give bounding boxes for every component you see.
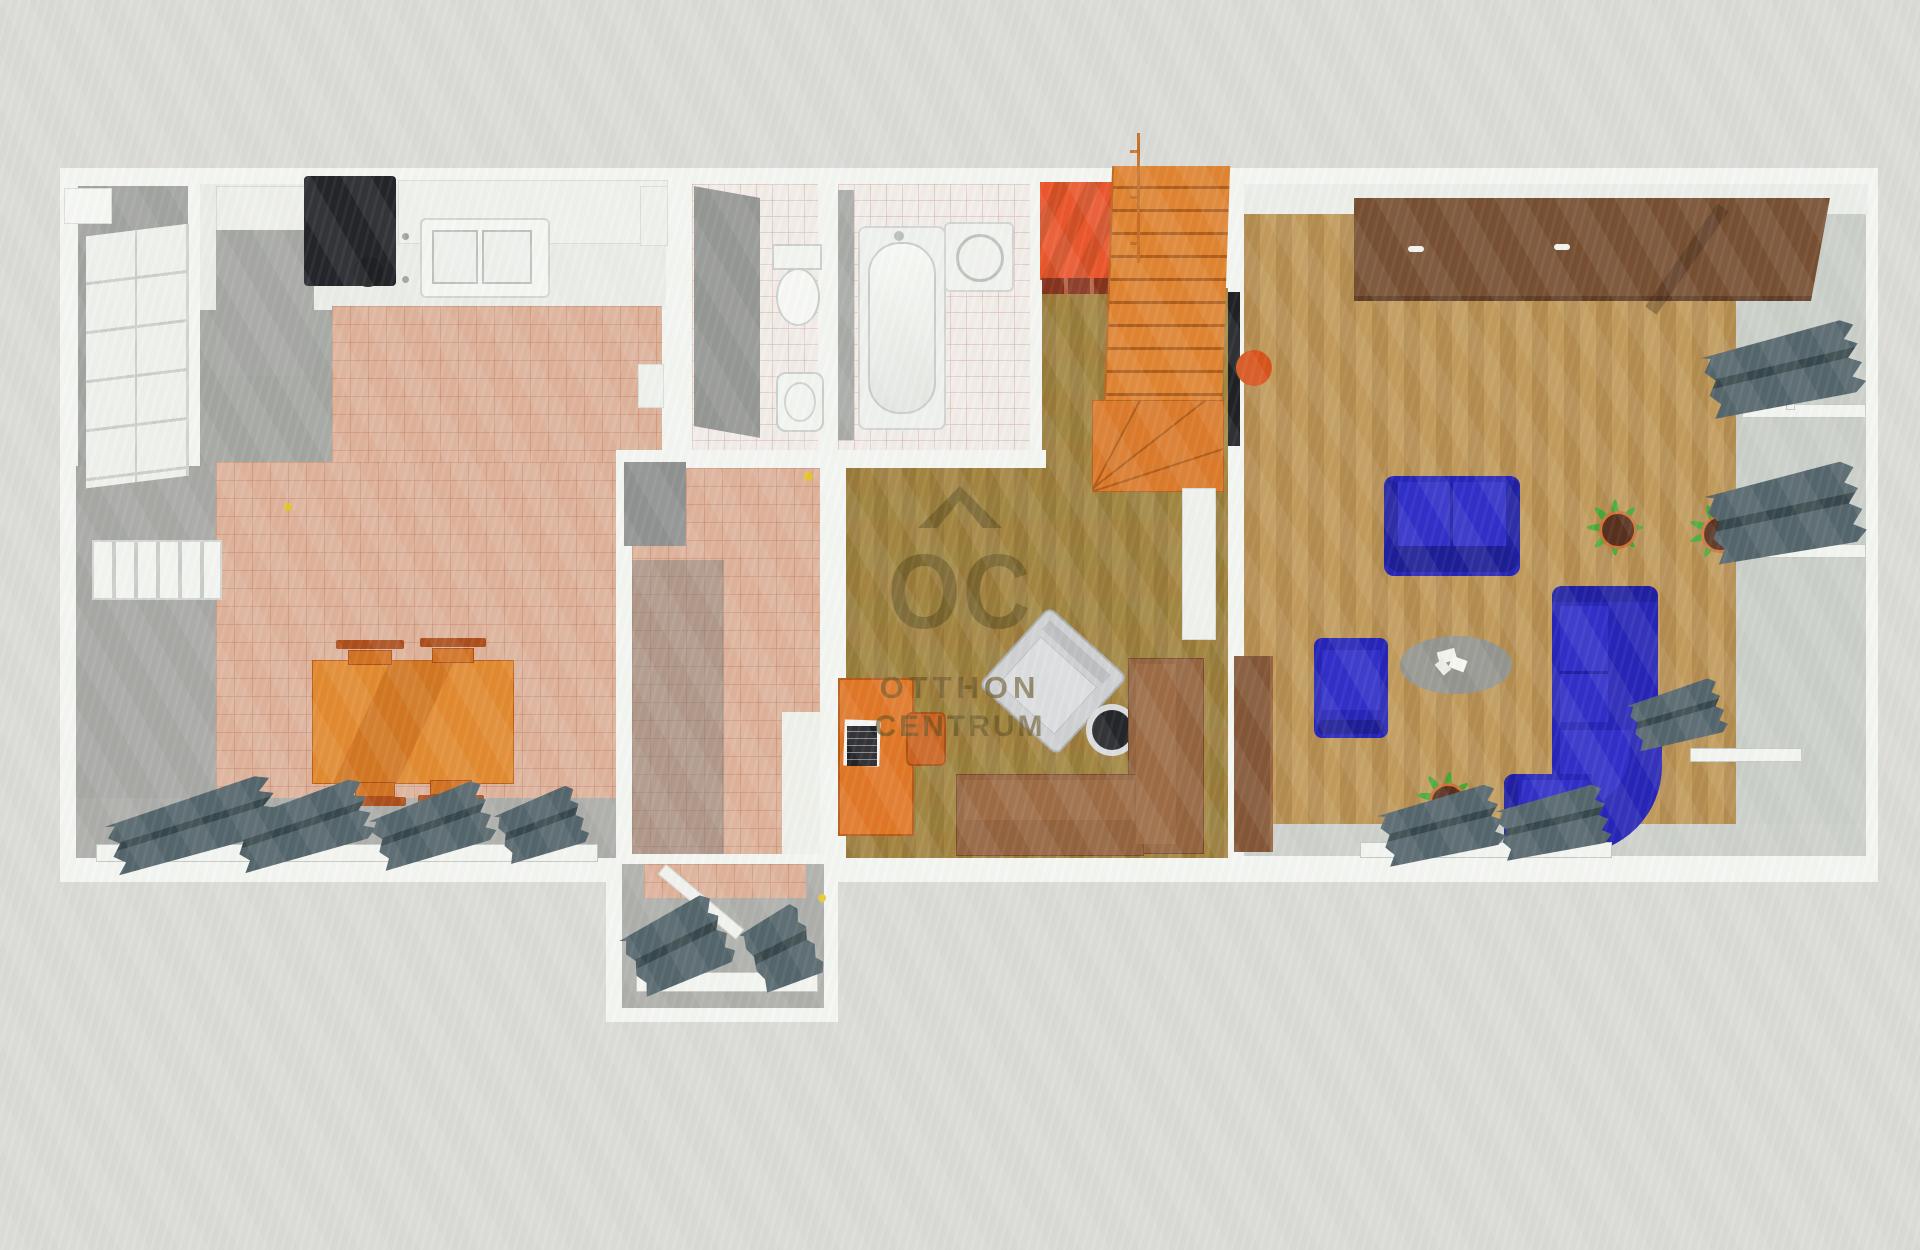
closet-shelf-unit [86,224,189,489]
counter-box-lower [638,364,664,408]
watermark-line2: CENTRUM [870,710,1050,744]
faucet-icon [402,276,409,283]
brown-sofa-seat [1136,664,1176,844]
door-handle-dot [804,472,813,481]
bathtub-faucet [894,231,904,241]
dining-table [312,660,514,784]
counter-box-right [640,186,668,246]
toilet-tank [772,244,822,270]
hallway-wall-fragment [624,462,686,546]
stair-winders [1092,400,1224,492]
blue-armchair [1314,638,1388,738]
kitchen-door-handle-dot [284,503,292,511]
brown-sofa-seat [964,780,1134,820]
hallway-light-patch [782,712,820,854]
side-table-black [1092,710,1132,750]
wardrobe-brown [1354,198,1830,301]
kitchen-tile-floor [332,306,662,468]
dining-window-shutter [92,540,222,600]
blue-loveseat [1384,476,1520,576]
wc-left-wall-face [694,186,760,438]
watermark-abbrev: OC [883,537,1037,647]
wardrobe-handle [1554,244,1570,250]
orange-stool [1236,350,1272,386]
bidet-basin [784,382,816,422]
washer-door [956,234,1004,282]
right-window-frame [1690,748,1802,762]
dining-chair [420,638,486,664]
range-knob [353,257,383,287]
hallway-shadow [632,560,724,854]
study-door-leaf [1182,488,1216,640]
porch-door-handle-dot [818,894,826,902]
wardrobe-handle [1408,246,1424,252]
stair-run [1104,166,1230,404]
bathroom-left-wall-face [838,190,854,440]
fridge-cabinet-front [216,230,314,376]
photographed-screen: OC OTTHON CENTRUM [0,0,1920,1250]
closet-door-panel [64,188,112,224]
sink-basin-left [432,230,478,284]
watermark-line1: OTTHON [876,670,1044,706]
stair-railing-post [1130,242,1140,245]
dining-chair [336,640,404,666]
fridge-cabinet-top [216,186,316,234]
potted-plant [1580,492,1650,562]
sink-basin-right [482,230,532,284]
bathtub-basin [868,242,936,414]
toilet-bowl [776,268,820,326]
stair-railing-post [1130,196,1140,199]
console-desk-brown [1234,656,1273,852]
stair-railing-post [1130,150,1140,153]
faucet-icon [402,233,409,240]
